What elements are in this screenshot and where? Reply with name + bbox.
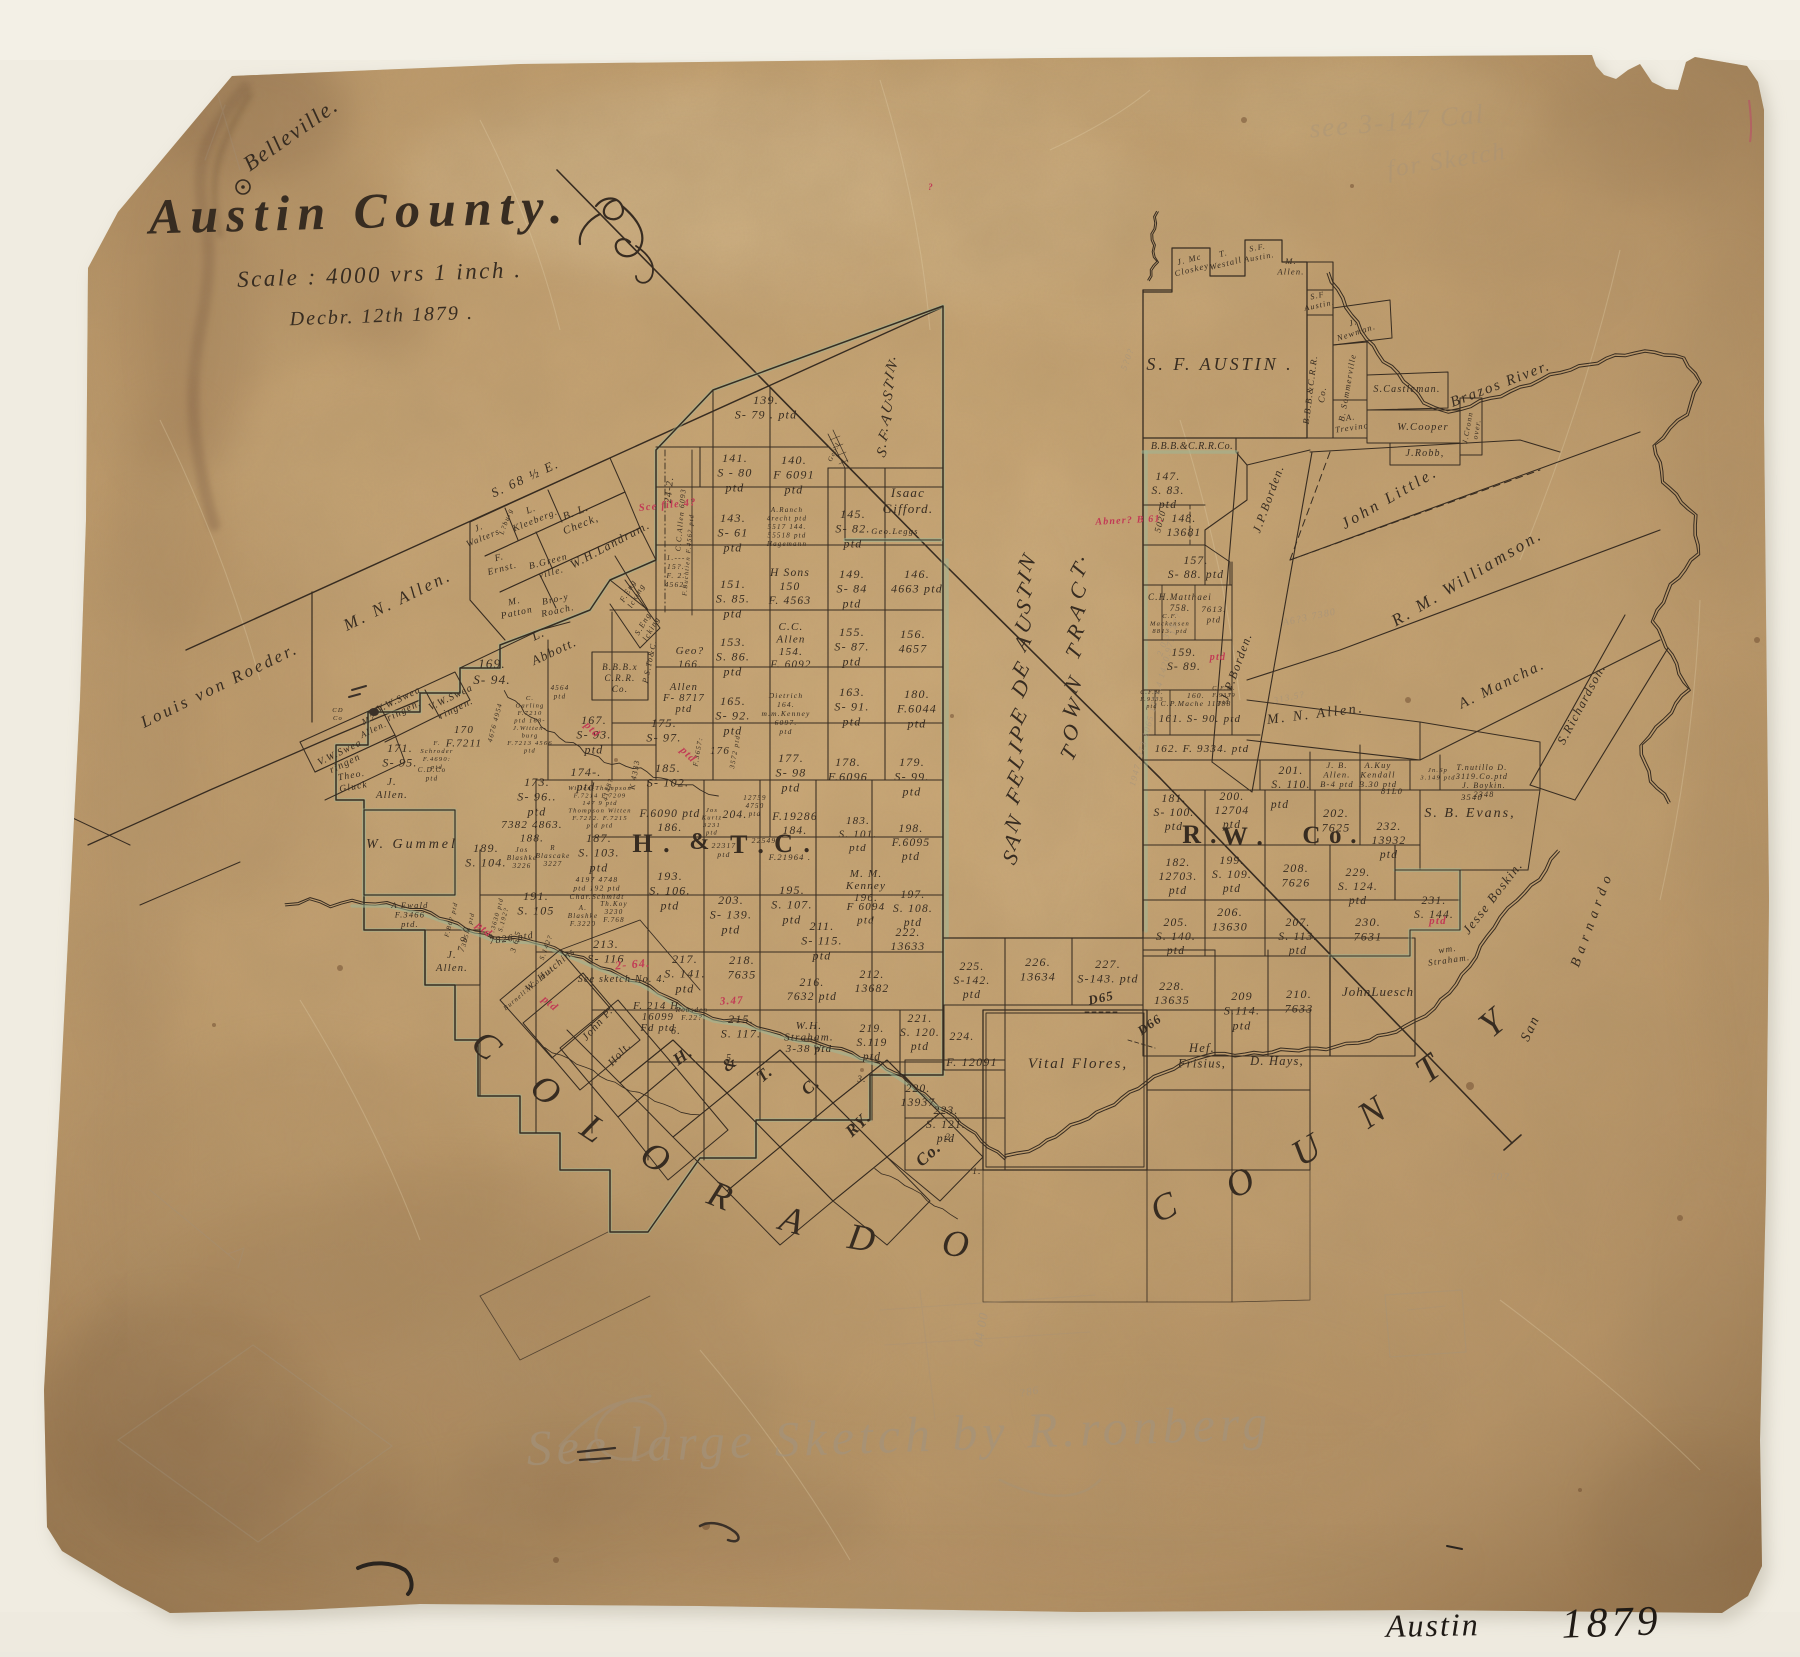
svg-text:ptd: ptd bbox=[1428, 915, 1447, 927]
svg-text:224.: 224. bbox=[950, 1031, 975, 1043]
svg-text:ptd: ptd bbox=[1209, 652, 1226, 663]
svg-text:Austin County.: Austin County. bbox=[145, 177, 571, 244]
svg-text:Vital Flores,: Vital Flores, bbox=[1028, 1056, 1128, 1072]
svg-text:5.: 5. bbox=[726, 1053, 736, 1064]
svg-text:S.Castleman.: S.Castleman. bbox=[1373, 384, 1440, 395]
svg-text:210.7633: 210.7633 bbox=[1285, 987, 1314, 1016]
svg-text:22549: 22549 bbox=[752, 836, 777, 845]
svg-text:161. S- 90. ptd: 161. S- 90. ptd bbox=[1159, 713, 1241, 725]
svg-text:176: 176 bbox=[710, 745, 730, 757]
svg-text:T.nutillo D.3119.Co.ptd: T.nutillo D.3119.Co.ptd bbox=[1455, 763, 1508, 781]
svg-text:B.B.B.&C.R.R.Co.: B.B.B.&C.R.R.Co. bbox=[1151, 441, 1233, 452]
svg-text:4197 4748ptd 192 ptdChar.Schmi: 4197 4748ptd 192 ptdChar.Schmidt bbox=[569, 875, 624, 901]
svg-text:D. Hays,: D. Hays, bbox=[1249, 1054, 1304, 1068]
svg-text:81L0: 81L0 bbox=[1381, 786, 1403, 796]
svg-text:3.: 3. bbox=[856, 1074, 866, 1084]
svg-text:O: O bbox=[940, 1223, 971, 1266]
svg-text:C o .: C o . bbox=[1302, 822, 1357, 849]
svg-text:Geo.Leggs: Geo.Leggs bbox=[871, 526, 918, 536]
svg-text:H .: H . bbox=[632, 829, 671, 858]
svg-text:204.: 204. bbox=[723, 809, 748, 821]
svg-text:W.Cooper: W.Cooper bbox=[1397, 422, 1449, 433]
svg-text:F. 12091: F. 12091 bbox=[945, 1055, 997, 1069]
svg-text:6.: 6. bbox=[671, 1026, 681, 1037]
svg-text:169.S- 94.: 169.S- 94. bbox=[473, 656, 511, 687]
svg-text:208.7626: 208.7626 bbox=[1282, 861, 1311, 890]
svg-text:JohnLuesch: JohnLuesch bbox=[1342, 984, 1414, 999]
svg-text:218.7635: 218.7635 bbox=[728, 953, 757, 982]
svg-text:?0?: ?0? bbox=[1490, 1171, 1510, 1183]
svg-text:ptd: ptd bbox=[1270, 799, 1289, 811]
svg-text:S. B. Evans,: S. B. Evans, bbox=[1424, 806, 1515, 821]
svg-text:CDCo: CDCo bbox=[332, 707, 343, 722]
svg-text:3.47: 3.47 bbox=[719, 994, 745, 1007]
svg-text:R .: R . bbox=[1182, 820, 1217, 849]
svg-text:206.13630: 206.13630 bbox=[1212, 905, 1248, 934]
svg-text:F.21964 .: F.21964 . bbox=[768, 852, 812, 862]
svg-text:&: & bbox=[689, 829, 710, 855]
svg-text:S. F. AUSTIN .: S. F. AUSTIN . bbox=[1146, 354, 1293, 374]
svg-text:162. F. 9334. ptd: 162. F. 9334. ptd bbox=[1155, 743, 1250, 755]
svg-text:175.S- 97.: 175.S- 97. bbox=[646, 716, 681, 745]
svg-text:W. Gummel: W. Gummel bbox=[366, 837, 458, 852]
svg-text:2.: 2. bbox=[945, 1132, 954, 1142]
svg-text:3540: 3540 bbox=[1460, 792, 1483, 802]
svg-text:A.Ranch4recht ptd5517 144.555: A.Ranch4recht ptd5517 144.55518 ptdHagem… bbox=[766, 506, 807, 548]
svg-text:1879: 1879 bbox=[1561, 1598, 1663, 1647]
svg-text:W.: W. bbox=[813, 1044, 824, 1054]
svg-text:W .: W . bbox=[1222, 822, 1264, 851]
svg-text:1.: 1. bbox=[972, 1166, 981, 1176]
svg-text:Austin: Austin bbox=[1384, 1606, 1480, 1644]
svg-text:230.7631: 230.7631 bbox=[1354, 915, 1383, 944]
svg-text:A.KuyKendallB.30 ptd: A.KuyKendallB.30 ptd bbox=[1359, 760, 1397, 789]
svg-text:156.4657: 156.4657 bbox=[899, 627, 928, 656]
svg-text:J.Robb,: J.Robb, bbox=[1406, 448, 1445, 459]
svg-text:226.13634: 226.13634 bbox=[1020, 955, 1056, 984]
svg-text:171.S- 95.: 171.S- 95. bbox=[382, 741, 417, 770]
svg-text:Co.: Co. bbox=[1316, 386, 1328, 403]
svg-text:See sketch No. 4.: See sketch No. 4. bbox=[578, 974, 666, 985]
svg-text:Geo?166.: Geo?166. bbox=[676, 645, 705, 670]
svg-text:?: ? bbox=[928, 182, 934, 192]
svg-text:228.13635: 228.13635 bbox=[1154, 979, 1190, 1007]
